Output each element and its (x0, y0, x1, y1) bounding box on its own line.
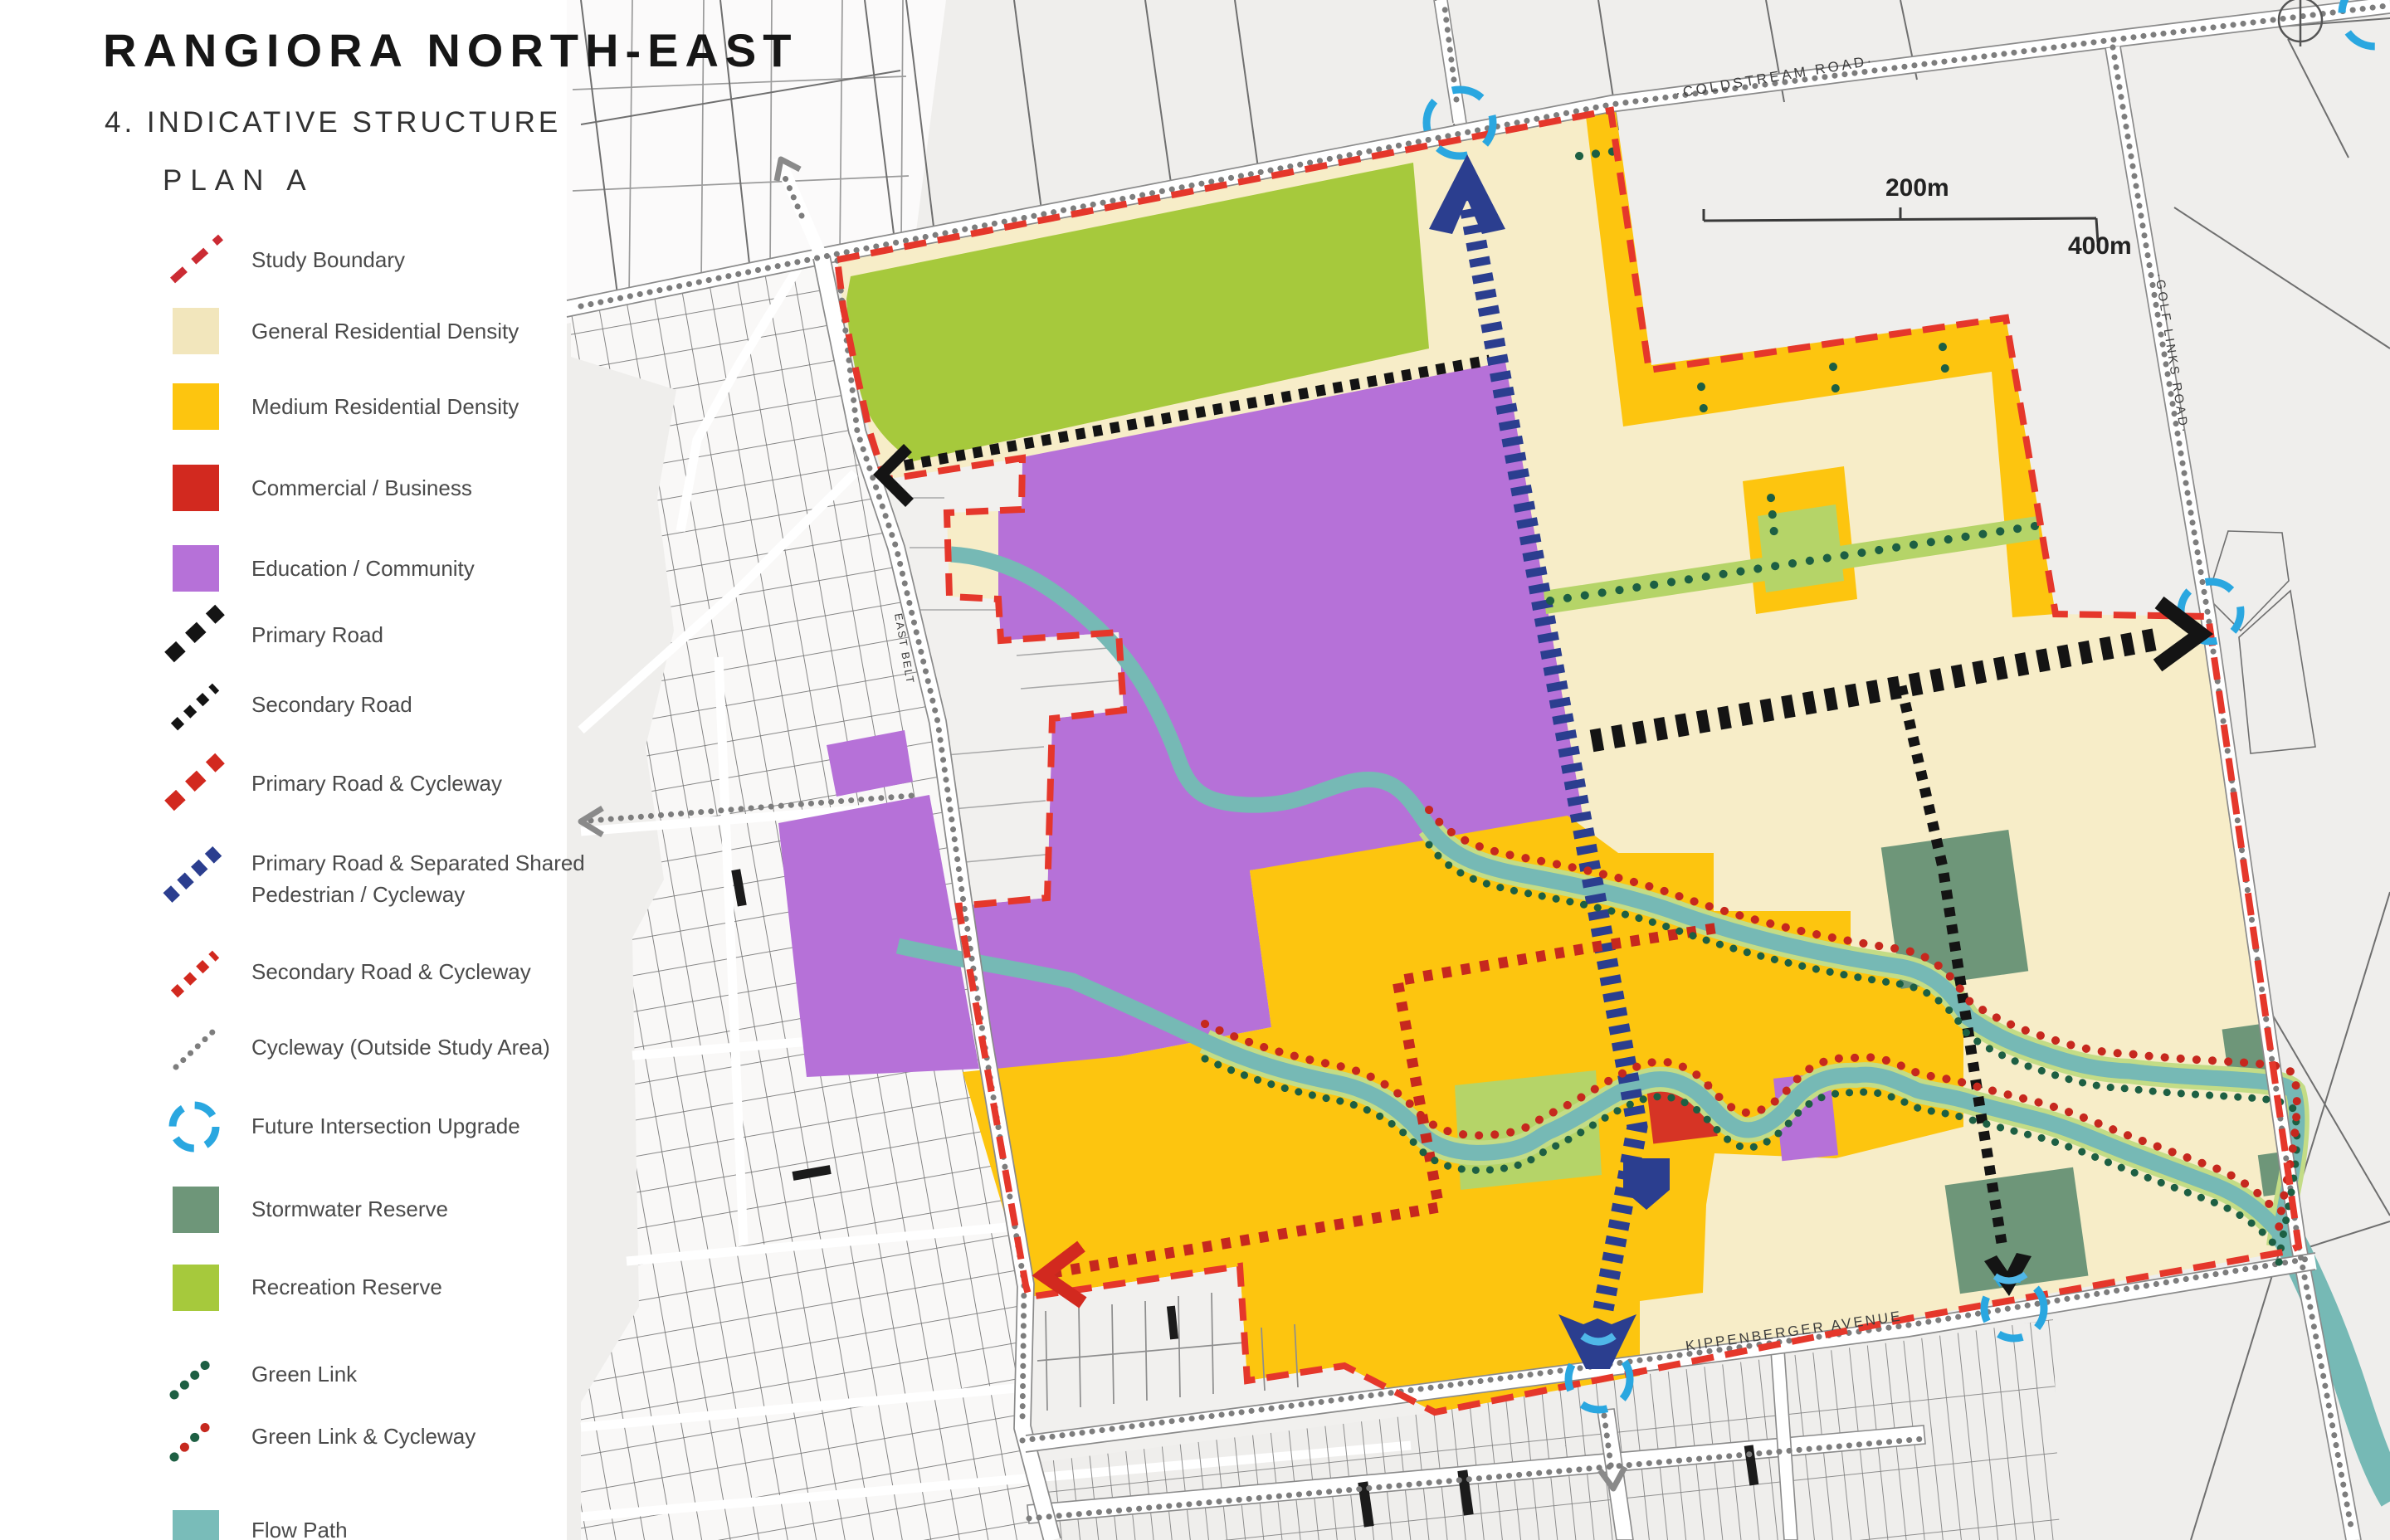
svg-text:200m: 200m (1885, 174, 1949, 202)
svg-text:PLAN A: PLAN A (163, 164, 315, 197)
svg-text:Recreation Reserve: Recreation Reserve (251, 1274, 442, 1299)
svg-text:Cycleway (Outside Study Area): Cycleway (Outside Study Area) (251, 1035, 550, 1060)
svg-text:General Residential Density: General Residential Density (251, 319, 519, 344)
svg-text:Secondary Road & Cycleway: Secondary Road & Cycleway (251, 959, 531, 984)
svg-text:Primary Road: Primary Road (251, 622, 383, 647)
svg-text:Primary Road & Cycleway: Primary Road & Cycleway (251, 771, 502, 796)
svg-text:Commercial / Business: Commercial / Business (251, 475, 472, 500)
svg-text:Green Link & Cycleway: Green Link & Cycleway (251, 1424, 476, 1449)
svg-text:Primary Road & Separated Share: Primary Road & Separated Shared (251, 850, 585, 875)
svg-text:Pedestrian / Cycleway: Pedestrian / Cycleway (251, 882, 465, 907)
svg-text:Medium Residential Density: Medium Residential Density (251, 394, 519, 419)
svg-text:400m: 400m (2068, 232, 2132, 260)
svg-text:Stormwater Reserve: Stormwater Reserve (251, 1196, 448, 1221)
svg-text:Secondary Road: Secondary Road (251, 692, 412, 717)
svg-text:Education / Community: Education / Community (251, 556, 475, 581)
svg-text:Study Boundary: Study Boundary (251, 247, 405, 272)
svg-text:4. INDICATIVE STRUCTURE: 4. INDICATIVE STRUCTURE (105, 106, 561, 139)
svg-text:Flow Path: Flow Path (251, 1518, 348, 1540)
svg-text:Green Link: Green Link (251, 1362, 358, 1386)
svg-text:Future Intersection Upgrade: Future Intersection Upgrade (251, 1114, 520, 1138)
svg-text:RANGIORA NORTH-EAST: RANGIORA NORTH-EAST (103, 24, 797, 76)
